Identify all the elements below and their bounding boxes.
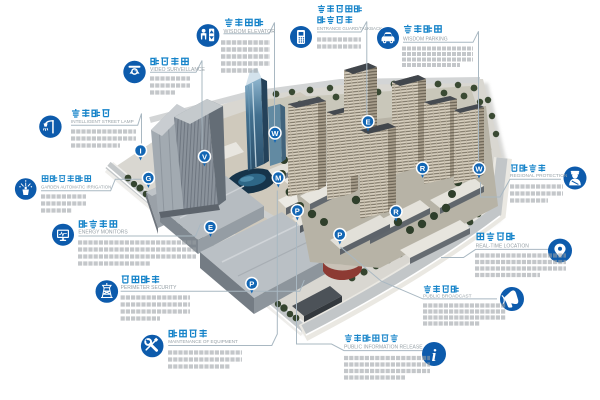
svg-text:WISDOM PARKING: WISDOM PARKING: [403, 37, 448, 43]
svg-text:REAL-TIME LOCATION: REAL-TIME LOCATION: [476, 243, 530, 249]
svg-text:P: P: [337, 230, 342, 239]
svg-text:W: W: [475, 164, 483, 173]
svg-text:PUBLIC BROADCAST: PUBLIC BROADCAST: [423, 293, 472, 299]
svg-text:P: P: [249, 279, 254, 288]
svg-text:INTELLIGENT STREET LAMP: INTELLIGENT STREET LAMP: [71, 119, 134, 124]
svg-text:PERIMETER SECURITY: PERIMETER SECURITY: [121, 285, 178, 291]
svg-text:E: E: [365, 117, 370, 126]
svg-text:M: M: [275, 173, 281, 182]
svg-text:G: G: [145, 174, 151, 183]
svg-text:I: I: [139, 146, 141, 155]
svg-text:ENTRANCE GUARD/TALKBACK: ENTRANCE GUARD/TALKBACK: [317, 26, 382, 31]
svg-text:GARDEN AUTOMATIC IRRIGATION: GARDEN AUTOMATIC IRRIGATION: [41, 184, 111, 189]
svg-text:R: R: [393, 207, 399, 216]
svg-text:E: E: [208, 223, 213, 232]
svg-text:PUBLIC INFORMATION RELEASE: PUBLIC INFORMATION RELEASE: [344, 345, 423, 351]
svg-text:P: P: [295, 206, 300, 215]
svg-text:REGIONAL PROTECTION: REGIONAL PROTECTION: [510, 173, 568, 179]
svg-text:MAINTENANCE OF EQUIPMENT: MAINTENANCE OF EQUIPMENT: [168, 339, 238, 344]
svg-text:R: R: [420, 164, 426, 173]
svg-text:W: W: [271, 129, 279, 138]
svg-text:WISDOM ELEVATOR: WISDOM ELEVATOR: [224, 29, 276, 35]
svg-text:ENERGY MONITORS: ENERGY MONITORS: [78, 230, 128, 236]
svg-text:i: i: [432, 346, 437, 365]
svg-text:VIDEO SURVEILLANCE: VIDEO SURVEILLANCE: [150, 67, 206, 73]
